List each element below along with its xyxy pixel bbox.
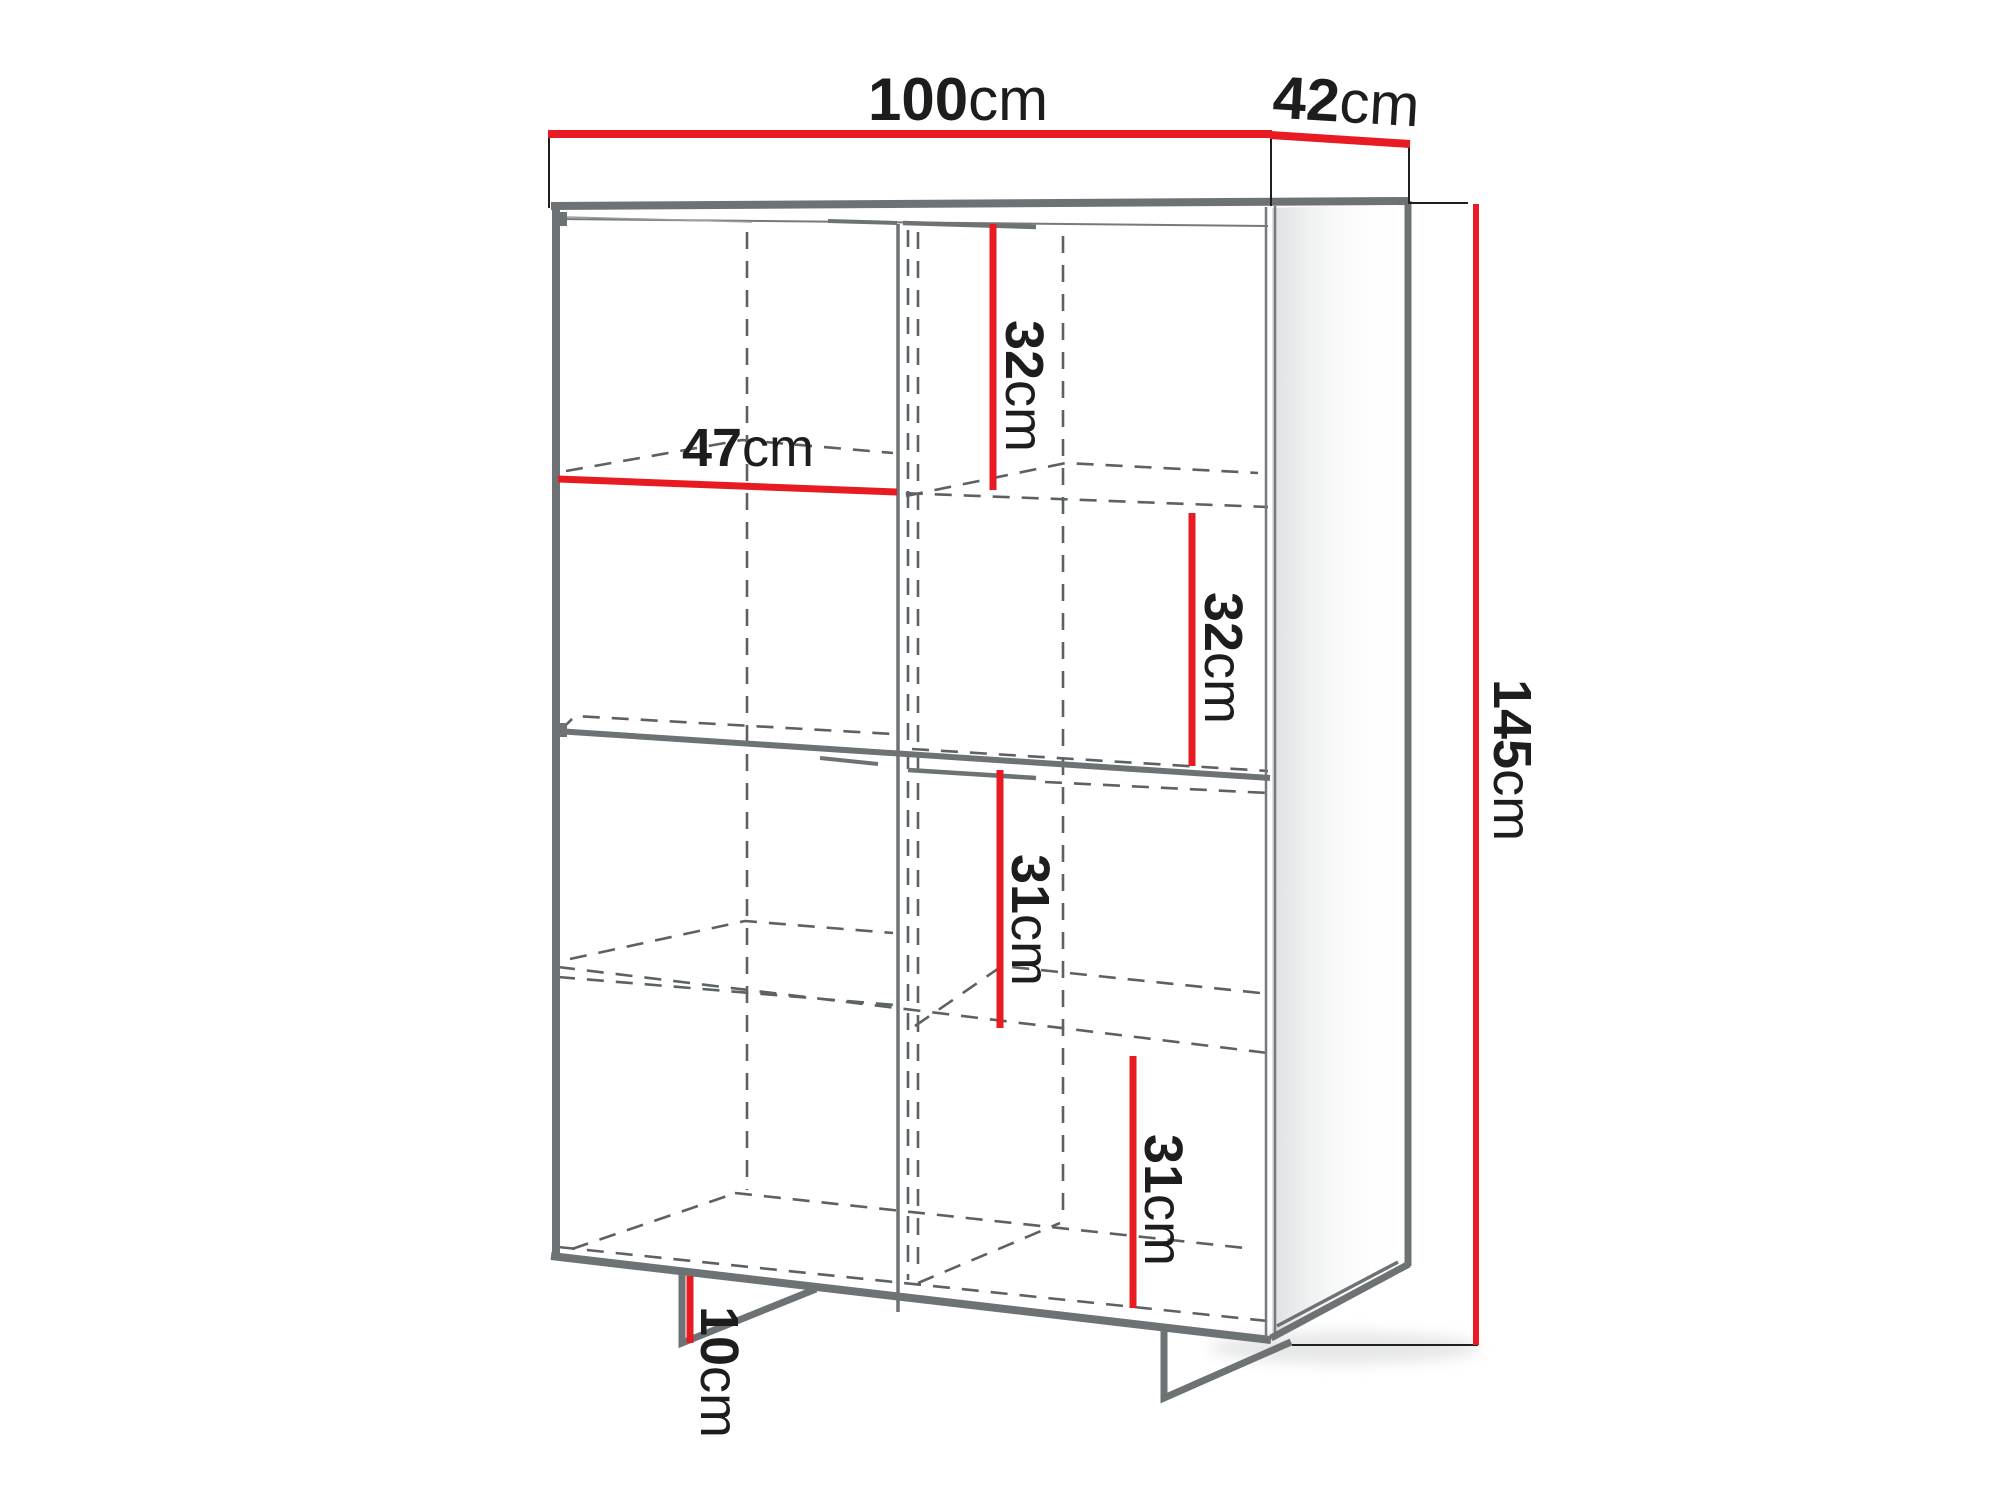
dimension-labels: 100cm 42cm 145cm 47cm 32cm 32cm 31cm 31c… [682,64,1542,1438]
shelf3-thickness-edge [558,977,895,1005]
handle-groove-middle-right [908,770,1036,778]
section-upper-right-label: 32cm [1193,592,1253,724]
section-bottom-right-label: 31cm [1133,1134,1193,1266]
divider-under-edge-right [1045,782,1268,793]
shelf-width-dimension-label: 47cm [682,418,814,478]
shelf1-back-edge-right [906,463,1258,496]
bottom-depth-diagonal-right [918,1223,1060,1283]
cabinet-side-panel [1210,203,1480,1364]
shelf-width-dimension-line [558,479,897,492]
cabinet-diagram-canvas: 100cm 42cm 145cm 47cm 32cm 32cm 31cm 31c… [0,0,2000,1500]
bottom-depth-diagonal-left [572,1194,733,1249]
depth-dimension-label: 42cm [1271,64,1422,140]
section-lower-right-label: 31cm [1000,854,1060,986]
section-top-right-label: 32cm [994,320,1054,452]
leg-height-label: 10cm [689,1306,749,1438]
handle-groove-middle-left [820,758,878,764]
top-edge [551,201,1408,206]
width-dimension-label: 100cm [868,66,1048,133]
middle-divider-left-block [553,723,567,737]
handle-groove-top-left [828,221,897,223]
door-hinge-block-top-left [553,212,567,226]
shelf3-back-edge-left [570,921,893,959]
dimension-diagram: 100cm 42cm 145cm 47cm 32cm 32cm 31cm 31c… [0,0,2000,1500]
height-dimension-label: 145cm [1482,679,1542,841]
shelf3-front-edge [558,967,1268,1053]
divider-back-edge-left [560,716,893,734]
bottom-edge [551,1256,1271,1340]
